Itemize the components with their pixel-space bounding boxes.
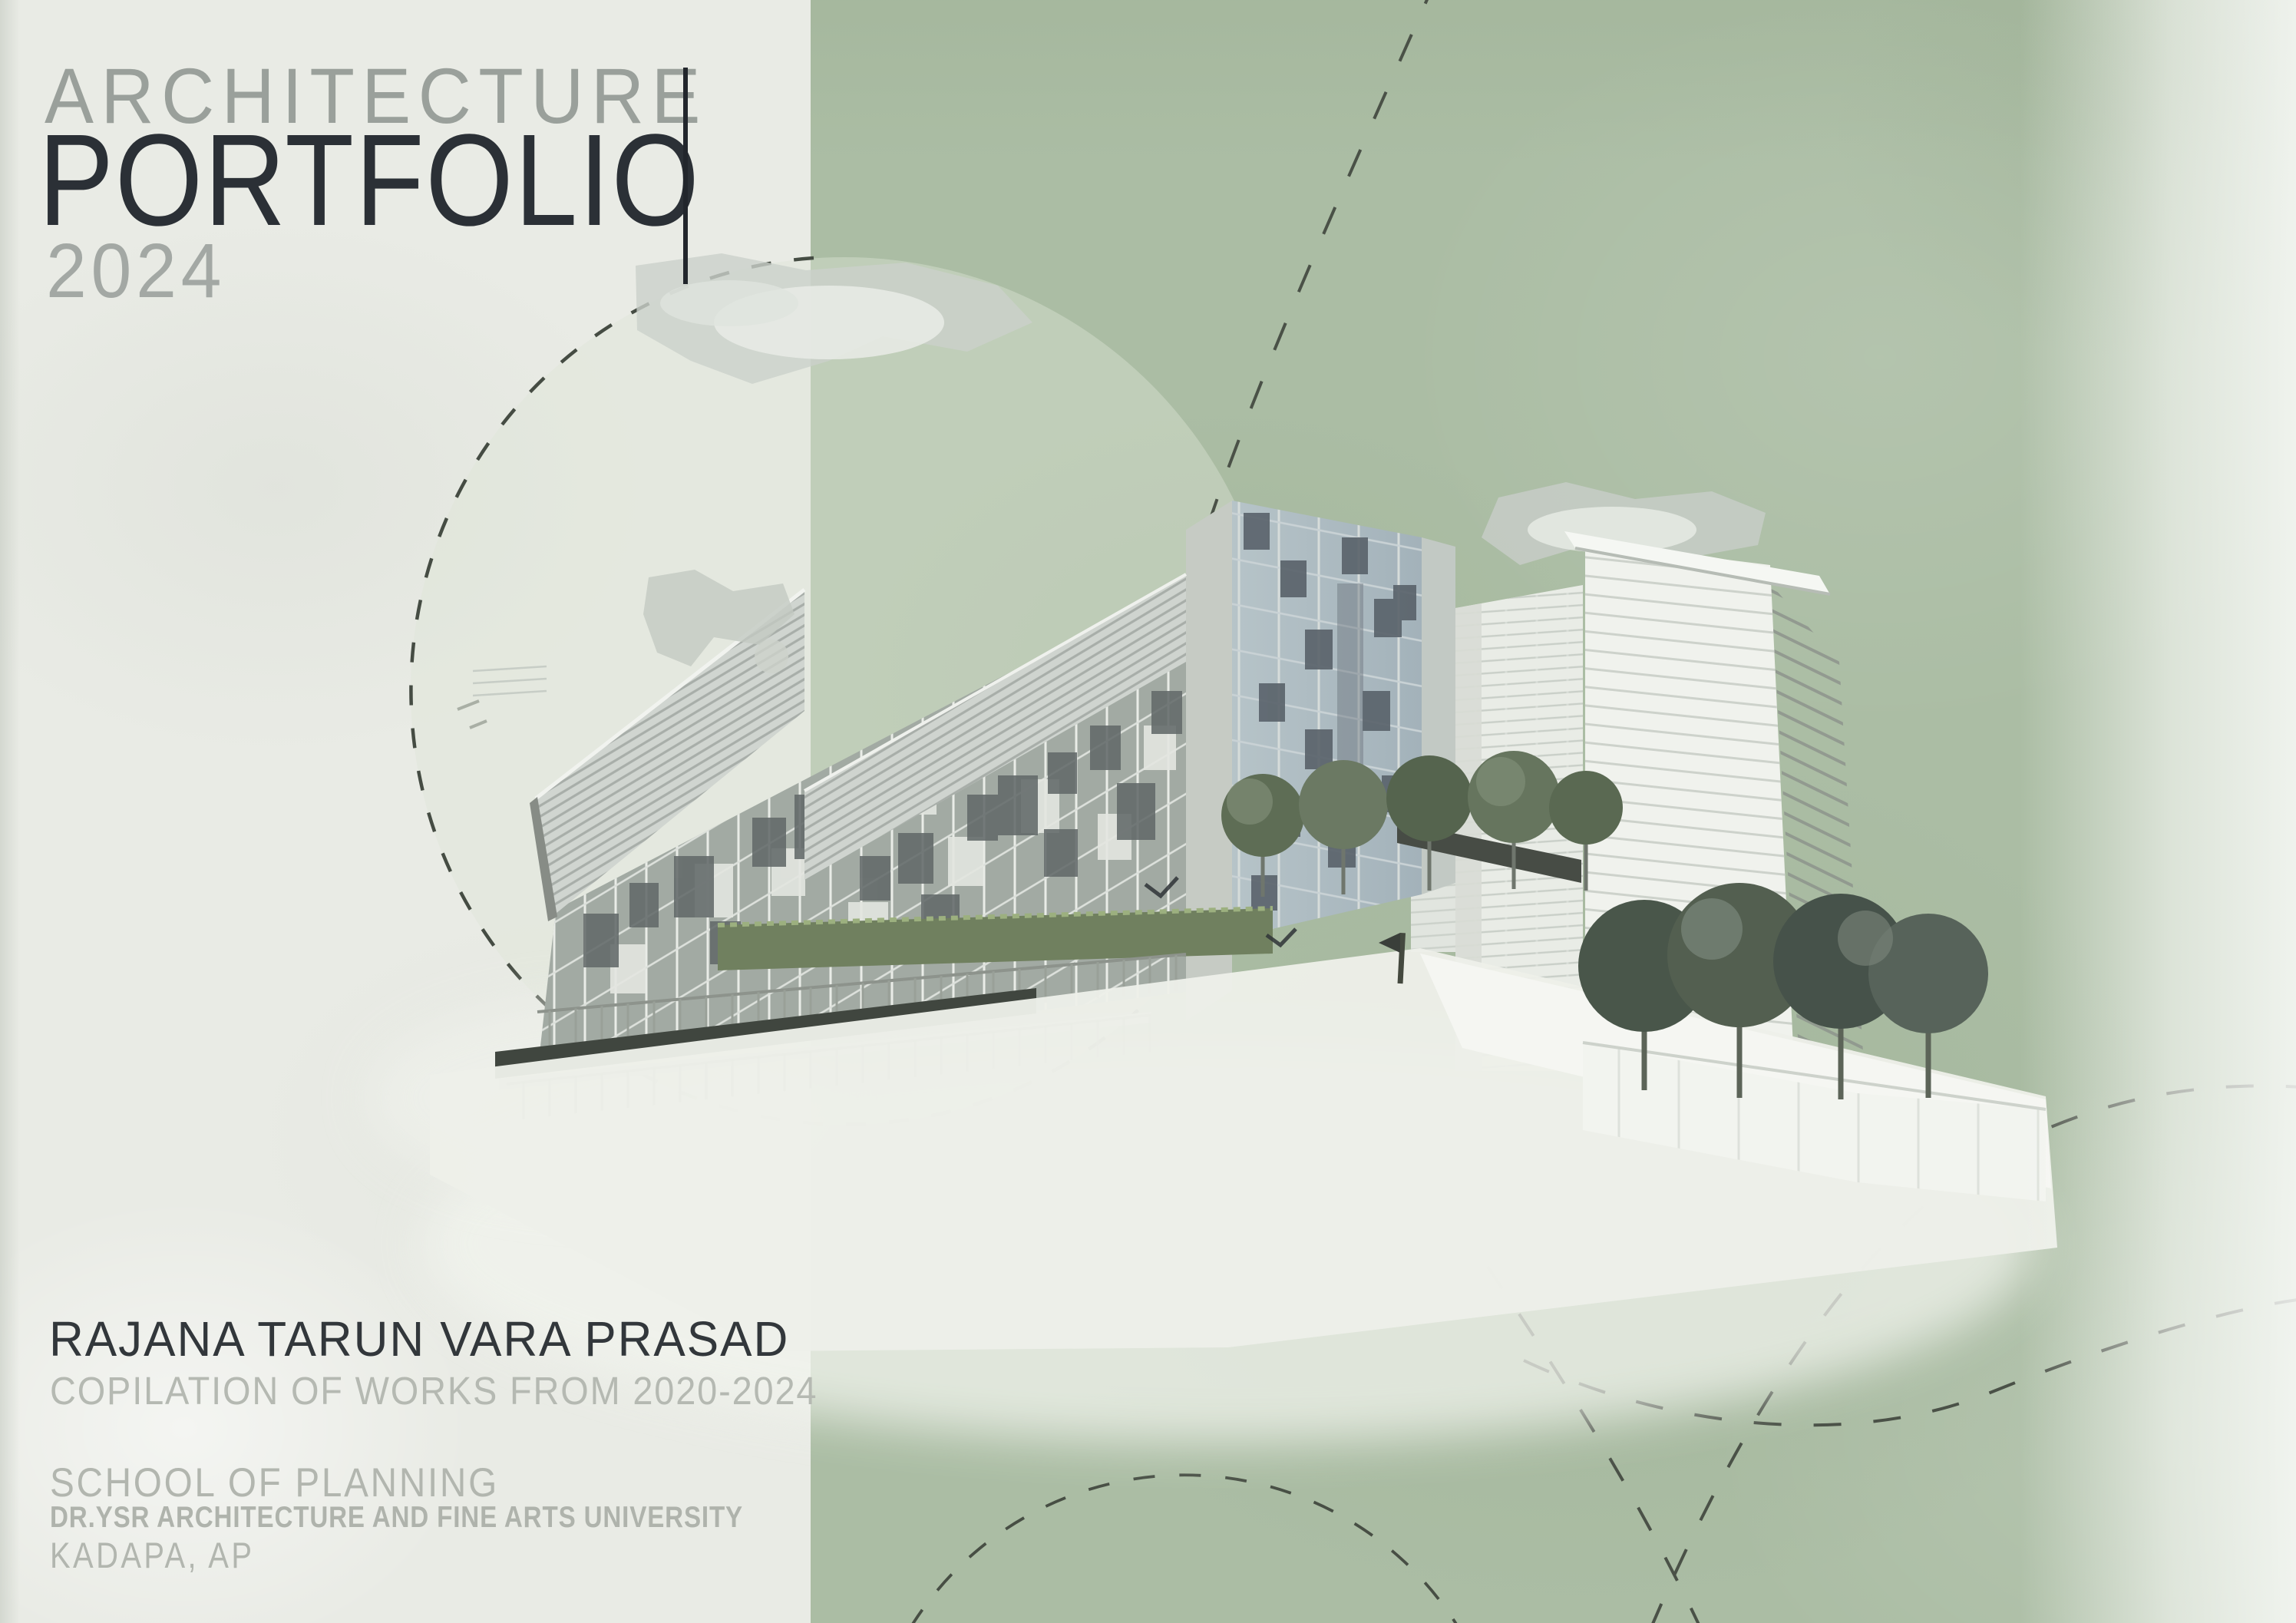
page-title: PORTFOLIO xyxy=(38,115,701,246)
right-edge-fade xyxy=(2020,0,2296,1623)
portfolio-cover-page: ARCHITECTURE PORTFOLIO 2024 RAJANA TARUN… xyxy=(0,0,2296,1623)
author-name: RAJANA TARUN VARA PRASAD xyxy=(49,1314,789,1364)
title-accent-bar xyxy=(683,68,688,284)
institution-location: KADAPA, AP xyxy=(50,1537,254,1573)
institution-university: DR.YSR ARCHITECTURE AND FINE ARTS UNIVER… xyxy=(50,1502,743,1532)
title-year: 2024 xyxy=(46,233,226,309)
dashed-arc-bottom xyxy=(910,1475,1459,1623)
institution-school: SCHOOL OF PLANNING xyxy=(50,1463,499,1503)
works-range-subtitle: COPILATION OF WORKS FROM 2020-2024 xyxy=(50,1371,818,1410)
